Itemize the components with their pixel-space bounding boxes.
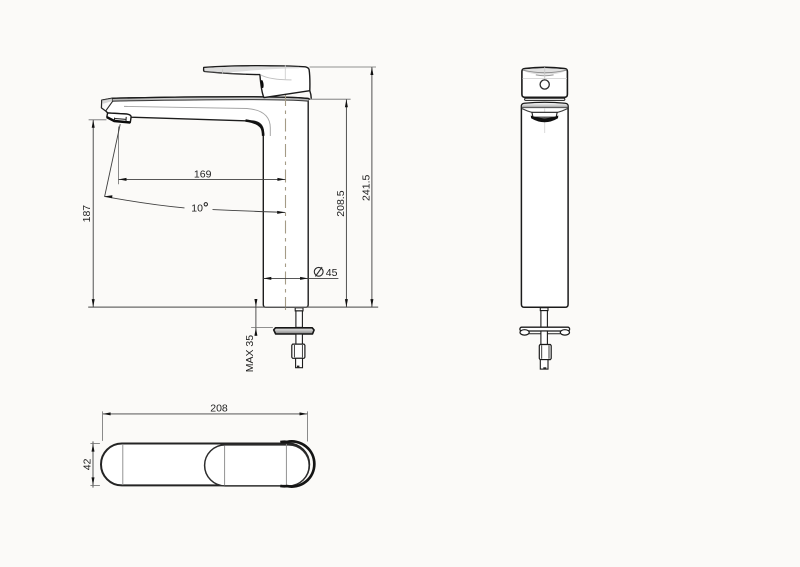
svg-text:10: 10: [191, 202, 203, 214]
svg-text:169: 169: [194, 168, 212, 180]
svg-text:241.5: 241.5: [361, 175, 373, 201]
svg-text:MAX 35: MAX 35: [244, 335, 256, 373]
svg-text:42: 42: [81, 458, 93, 470]
svg-text:208.5: 208.5: [335, 190, 347, 216]
svg-text:208: 208: [210, 403, 228, 415]
svg-text:45: 45: [326, 267, 338, 279]
svg-text:187: 187: [81, 205, 93, 223]
